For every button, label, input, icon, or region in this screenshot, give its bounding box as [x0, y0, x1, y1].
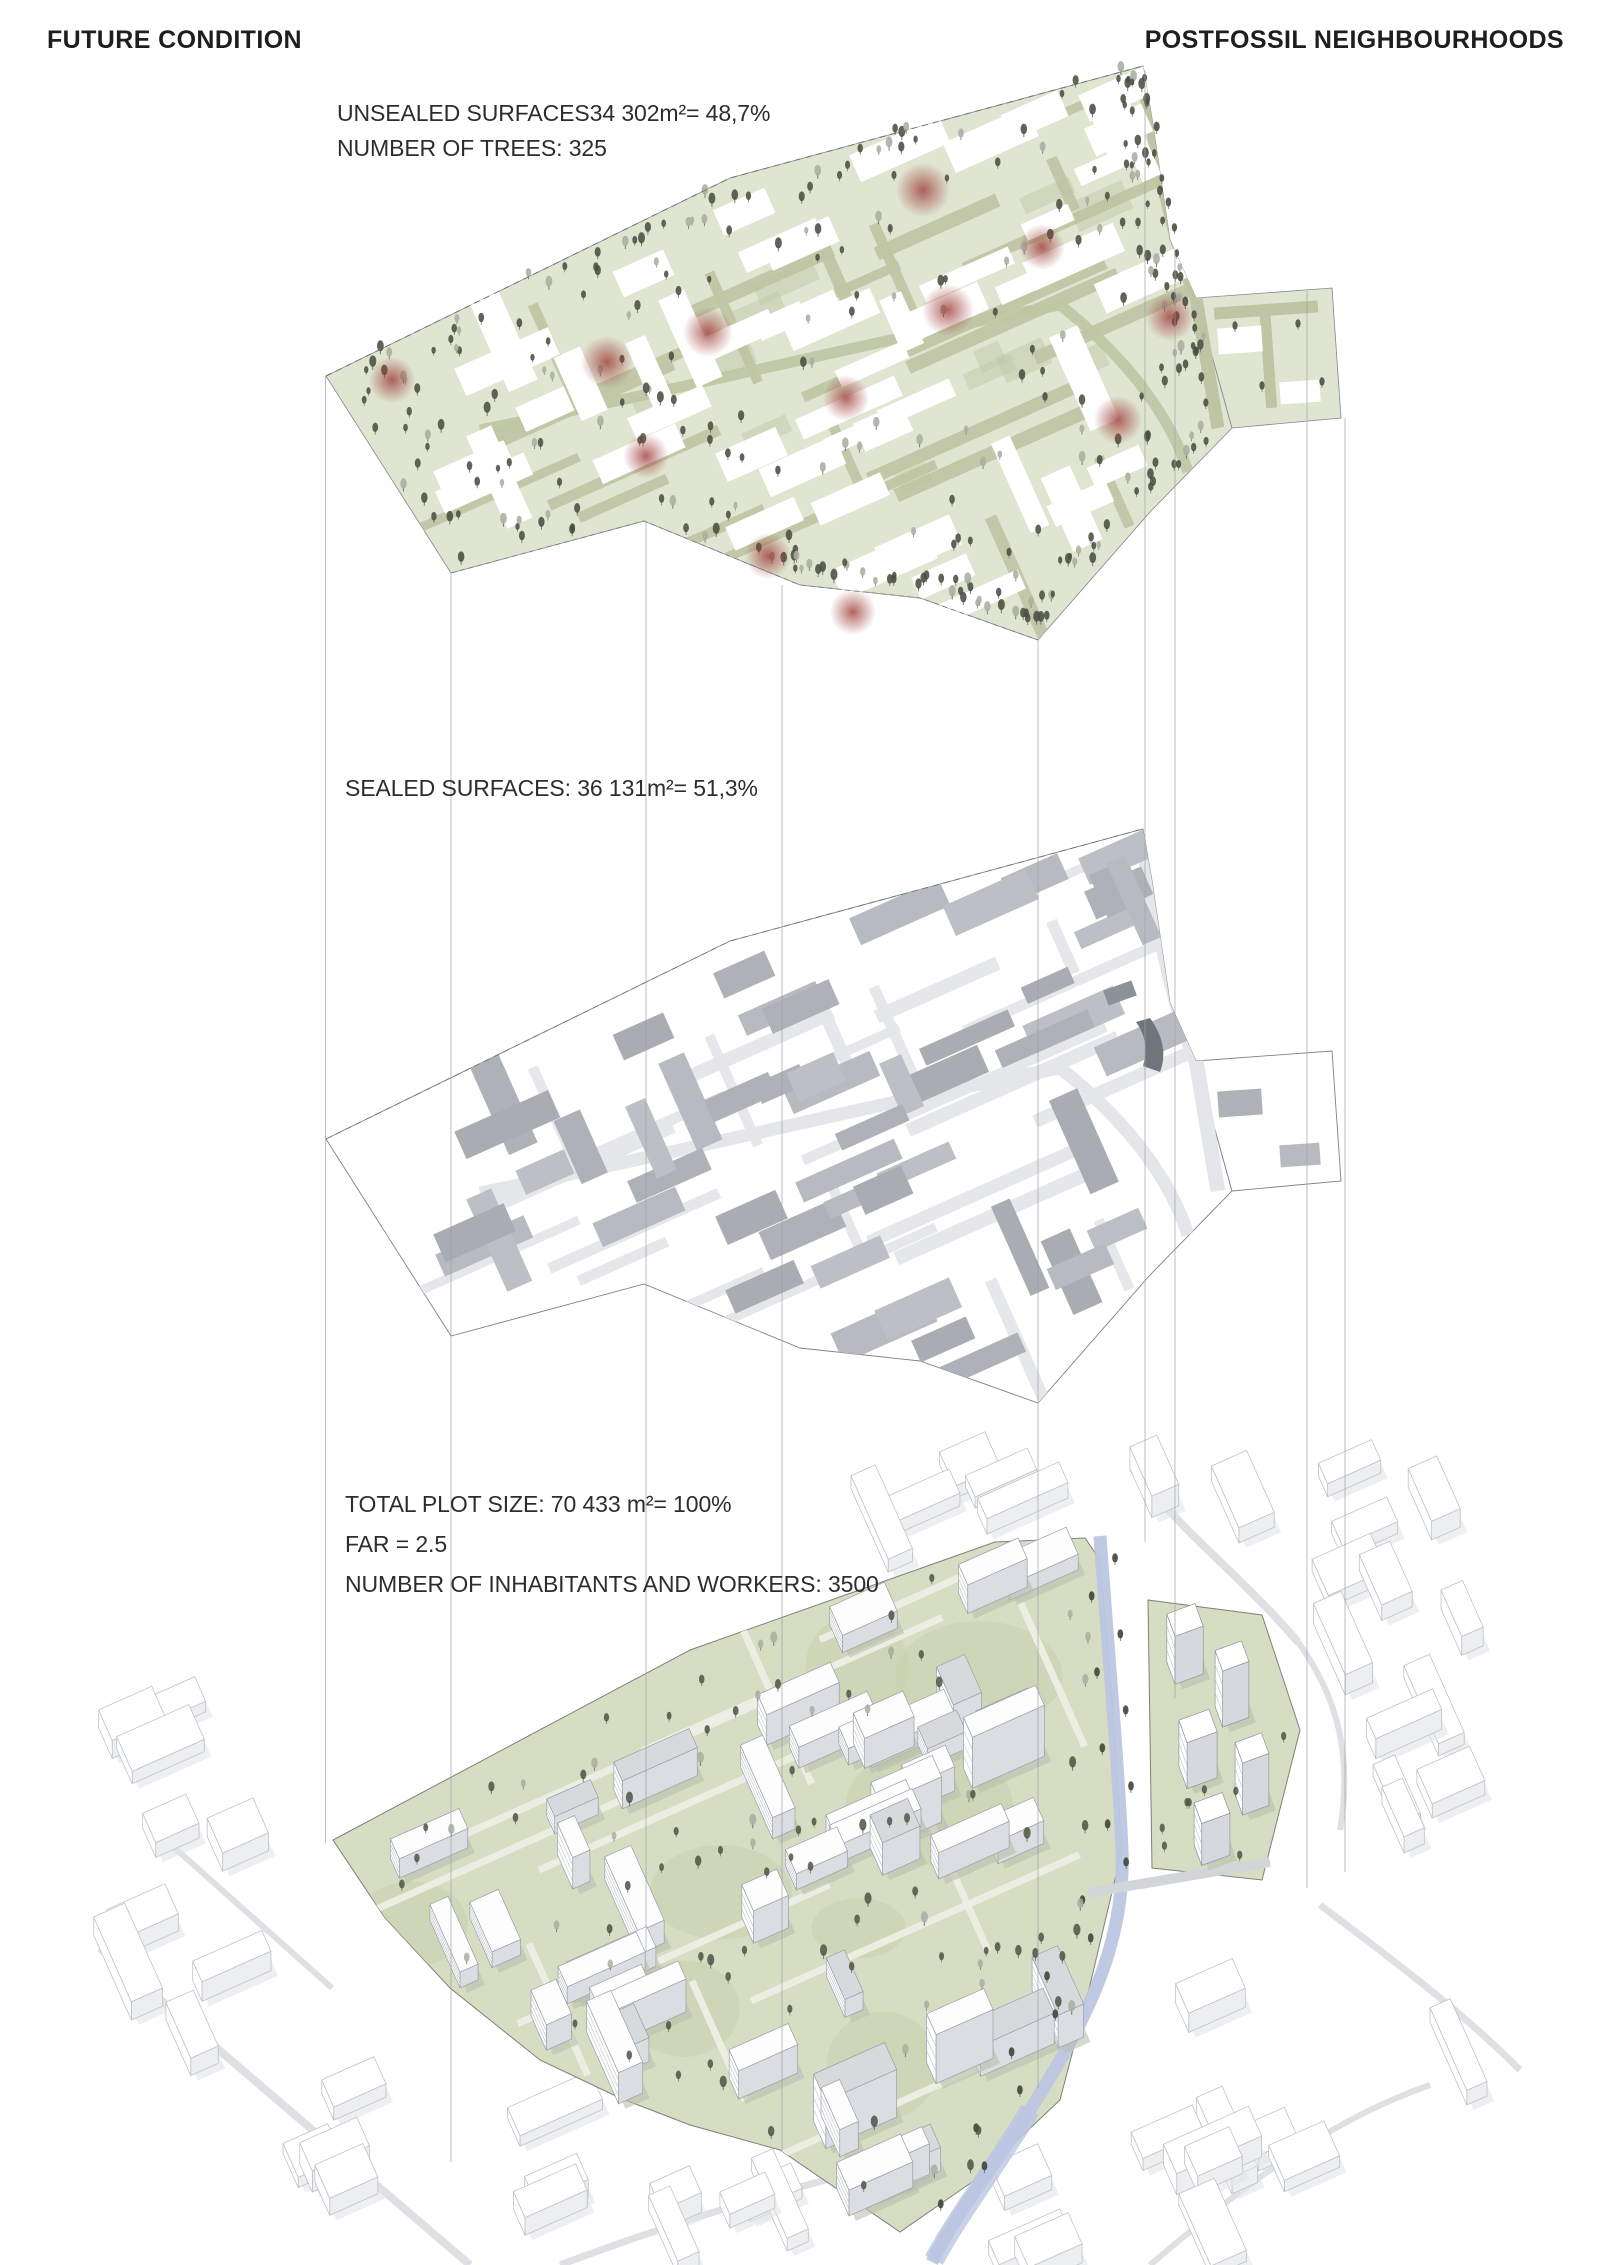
- inhabitants-line: NUMBER OF INHABITANTS AND WORKERS: 3500: [345, 1564, 879, 1604]
- red-hotspot: [368, 356, 415, 403]
- red-hotspot: [830, 589, 876, 635]
- unsealed-trees-line: NUMBER OF TREES: 325: [337, 131, 770, 166]
- layer-sealed-surfaces-plan: [326, 817, 1341, 1403]
- page-title-right: POSTFOSSIL NEIGHBOURHOODS: [1145, 26, 1564, 55]
- red-hotspot: [683, 307, 733, 357]
- red-hotspot: [823, 375, 869, 421]
- label-sealed-surfaces: SEALED SURFACES: 36 131m²= 51,3%: [345, 771, 758, 806]
- red-hotspot: [1019, 224, 1065, 270]
- label-total-plot: TOTAL PLOT SIZE: 70 433 m²= 100% FAR = 2…: [345, 1484, 879, 1604]
- sealed-area-line: SEALED SURFACES: 36 131m²= 51,3%: [345, 771, 758, 806]
- label-unsealed-surfaces: UNSEALED SURFACES34 302m²= 48,7% NUMBER …: [337, 96, 770, 166]
- page-title-left: FUTURE CONDITION: [47, 26, 302, 55]
- red-hotspot: [623, 433, 668, 478]
- red-hotspot: [1094, 396, 1143, 445]
- stacked-layers-diagram: [0, 0, 1600, 2265]
- red-hotspot: [580, 335, 633, 388]
- far-line: FAR = 2.5: [345, 1524, 879, 1564]
- total-plot-line: TOTAL PLOT SIZE: 70 433 m²= 100%: [345, 1484, 879, 1524]
- red-hotspot: [922, 284, 974, 336]
- red-hotspot: [896, 163, 951, 218]
- red-hotspot: [1146, 293, 1195, 342]
- unsealed-area-line: UNSEALED SURFACES34 302m²= 48,7%: [337, 96, 770, 131]
